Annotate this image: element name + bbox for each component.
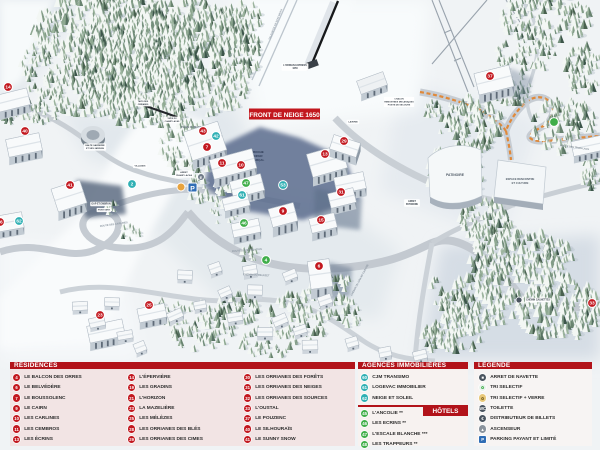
svg-text:31: 31 — [338, 190, 344, 196]
svg-text:PATINOIRE: PATINOIRE — [406, 203, 419, 206]
svg-text:47: 47 — [243, 181, 249, 187]
svg-text:43: 43 — [200, 129, 206, 135]
svg-text:TAPIS DES: TAPIS DES — [138, 100, 149, 103]
svg-text:PONT VERT: PONT VERT — [98, 210, 111, 212]
svg-text:41: 41 — [67, 183, 73, 189]
svg-text:P: P — [190, 185, 195, 192]
svg-text:ESPACE RENCONTRE: ESPACE RENCONTRE — [506, 177, 535, 181]
svg-text:11: 11 — [219, 161, 224, 167]
svg-text:2: 2 — [131, 182, 134, 188]
svg-text:ARRET: ARRET — [180, 171, 188, 174]
svg-text:13: 13 — [322, 152, 328, 158]
svg-text:ET SES JARDINS: ET SES JARDINS — [86, 147, 105, 150]
svg-text:62: 62 — [16, 219, 22, 225]
svg-text:HALTE GARDERIE: HALTE GARDERIE — [85, 144, 105, 147]
svg-text:14: 14 — [5, 85, 11, 91]
svg-text:46: 46 — [241, 221, 247, 227]
svg-text:POSTE DE SECOURS: POSTE DE SECOURS — [388, 105, 411, 107]
svg-text:9: 9 — [282, 209, 285, 215]
svg-text:7: 7 — [206, 145, 209, 151]
svg-text:CHEMIN CALMETTES: CHEMIN CALMETTES — [526, 299, 550, 302]
svg-text:53: 53 — [280, 183, 286, 189]
svg-text:4: 4 — [265, 258, 268, 264]
svg-text:CHAMP LACAS: CHAMP LACAS — [165, 120, 180, 123]
svg-text:REMONTEES MECANIQUES: REMONTEES MECANIQUES — [384, 101, 414, 104]
svg-text:ARRET: ARRET — [408, 200, 417, 203]
svg-text:1650: 1650 — [292, 67, 298, 70]
svg-text:6: 6 — [318, 264, 321, 270]
svg-text:GAP ET EMBRUN: GAP ET EMBRUN — [91, 203, 111, 206]
svg-text:16: 16 — [0, 220, 3, 226]
svg-text:29: 29 — [341, 139, 347, 145]
svg-text:FRONT DE NEIGE 1650: FRONT DE NEIGE 1650 — [249, 112, 320, 119]
svg-text:CHAMP LACAS: CHAMP LACAS — [176, 174, 193, 177]
svg-text:VILLAGES: VILLAGES — [135, 165, 146, 168]
svg-text:25: 25 — [146, 303, 152, 309]
svg-text:10: 10 — [238, 163, 244, 169]
svg-text:TAPIS DU: TAPIS DU — [167, 117, 177, 120]
svg-text:CHALON: CHALON — [394, 98, 404, 101]
svg-text:LAVERIE: LAVERIE — [348, 121, 358, 124]
svg-text:15: 15 — [318, 218, 324, 224]
svg-text:42: 42 — [213, 134, 219, 140]
svg-text:40: 40 — [22, 129, 28, 135]
svg-text:23: 23 — [97, 313, 103, 319]
svg-text:ET CULTURE: ET CULTURE — [512, 181, 529, 185]
svg-text:ORRIANES: ORRIANES — [138, 103, 149, 106]
svg-text:E: E — [200, 175, 203, 180]
svg-text:33: 33 — [589, 301, 595, 307]
svg-text:37: 37 — [487, 74, 493, 80]
svg-text:61: 61 — [239, 193, 245, 199]
svg-text:PATINOIRE: PATINOIRE — [446, 173, 465, 177]
